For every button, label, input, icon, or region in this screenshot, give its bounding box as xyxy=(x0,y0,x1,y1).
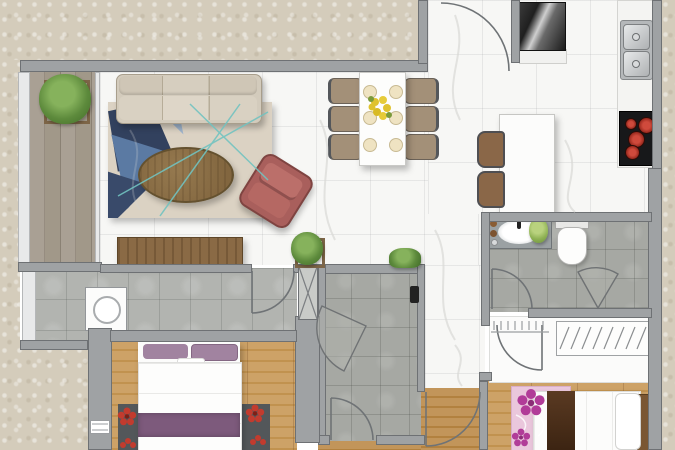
plate-5 xyxy=(363,138,377,152)
dining-hall-floor xyxy=(425,265,485,390)
plate-2 xyxy=(389,85,403,99)
balcony-plant-icon xyxy=(39,74,91,124)
corridor-floor xyxy=(421,388,482,450)
mirror-cabinet xyxy=(519,2,566,51)
wall-bathroom-top xyxy=(483,212,652,222)
bar-stool-1 xyxy=(477,131,505,168)
plant-a-icon xyxy=(291,232,323,265)
coffee-table xyxy=(138,147,234,203)
service-shaft xyxy=(298,266,318,320)
wall-bathroom-bottom xyxy=(528,308,652,318)
balcony-edge xyxy=(95,72,100,264)
wall-bedroom2-left xyxy=(479,381,488,450)
plate-3 xyxy=(363,111,377,125)
sink-drain-1 xyxy=(632,33,640,41)
vanity-cup xyxy=(491,239,498,246)
sofa xyxy=(116,74,262,124)
hallway-floor xyxy=(35,268,297,334)
plate-4 xyxy=(389,111,403,125)
sink-drain-2 xyxy=(632,60,640,68)
wall-right-kitchen xyxy=(652,0,662,170)
wall-top xyxy=(20,60,428,72)
bed-1-pillow-1 xyxy=(143,344,188,359)
vanity-soap-2 xyxy=(490,230,497,237)
wall-entry-stub xyxy=(511,0,520,63)
mirror-cabinet-base xyxy=(519,49,567,64)
plate-1 xyxy=(363,85,377,99)
shower-fixture-icon xyxy=(410,286,419,303)
dining-chair-6 xyxy=(404,134,439,160)
burner-1 xyxy=(625,118,637,130)
dining-chair-2 xyxy=(328,106,363,132)
sofa-seat-cushions xyxy=(119,96,257,120)
wardrobe xyxy=(556,321,650,356)
bar-stool-2 xyxy=(477,171,505,208)
washing-machine xyxy=(85,287,127,331)
wall-bedroom1-top xyxy=(110,330,297,342)
dining-chair-4 xyxy=(404,78,439,104)
toilet-bowl xyxy=(557,227,587,265)
wall-utility-right xyxy=(417,264,425,392)
wall-hall-bottom-left xyxy=(20,340,88,350)
bed-2-runner xyxy=(547,391,575,450)
bed-2-pillow xyxy=(615,393,641,450)
plate-6 xyxy=(389,138,403,152)
dining-chair-1 xyxy=(328,78,363,104)
wall-thick-center xyxy=(295,316,320,443)
kitchen-island xyxy=(499,114,555,216)
burner-4 xyxy=(625,145,640,160)
wall-balcony-bottom xyxy=(18,262,102,272)
bed-1-runner xyxy=(138,413,240,437)
window xyxy=(90,420,110,434)
wall-bedroom2-stub xyxy=(479,372,492,381)
wall-bathroom-left xyxy=(481,212,490,326)
dining-chair-5 xyxy=(404,106,439,132)
railing-lower xyxy=(22,270,36,346)
bed-1 xyxy=(138,342,240,450)
tv-console xyxy=(117,237,243,265)
utility-room-floor xyxy=(322,269,421,441)
plant-b-icon xyxy=(389,248,421,268)
dining-chair-3 xyxy=(328,134,363,160)
washer-drum-icon xyxy=(93,296,121,324)
wall-entry-jamb xyxy=(418,0,428,64)
balcony-railing xyxy=(18,72,30,266)
exterior-ground-bottom-left xyxy=(0,346,88,450)
sofa-back-cushions xyxy=(119,76,257,95)
exterior-ground-top xyxy=(0,0,418,60)
exterior-ground-right xyxy=(661,0,675,450)
wall-living-bottom-left xyxy=(100,264,252,273)
floor-plan xyxy=(0,0,675,450)
kitchen-sink xyxy=(620,20,653,80)
wall-utility-bottom-right xyxy=(376,435,425,445)
